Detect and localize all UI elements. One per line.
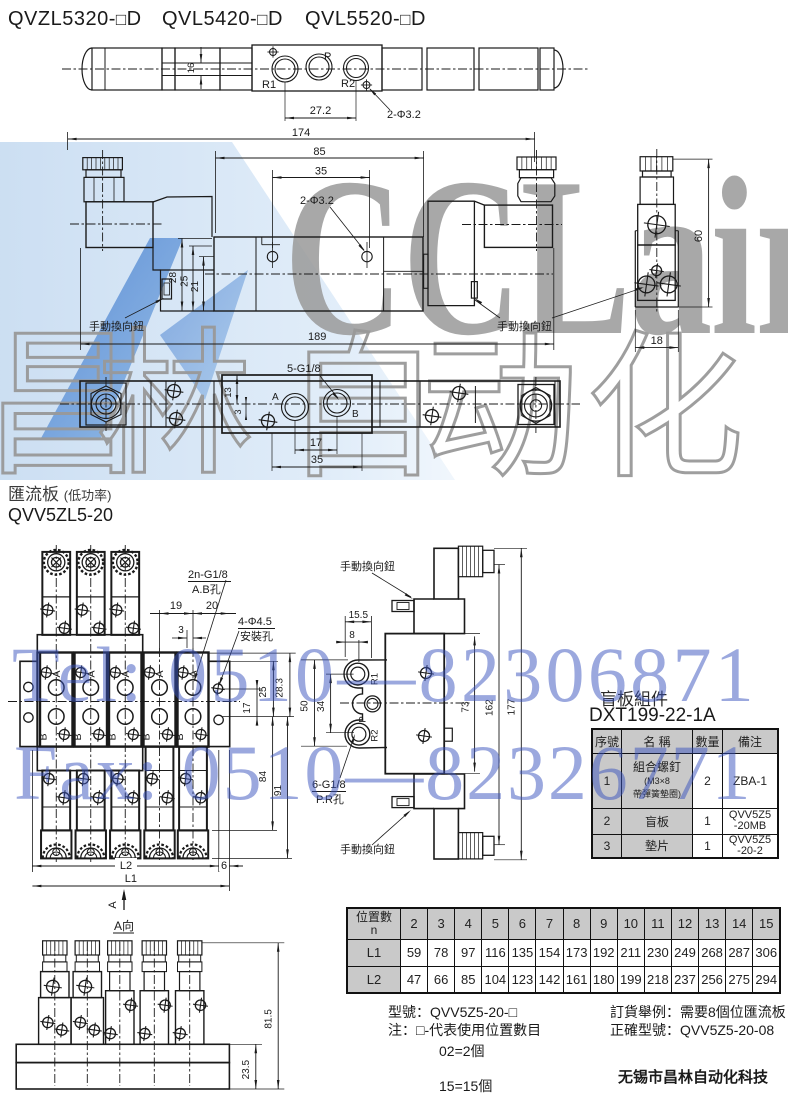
svg-text:3: 3 — [233, 409, 243, 414]
svg-text:174: 174 — [292, 127, 310, 139]
svg-text:A向: A向 — [114, 918, 134, 933]
svg-text:4-Φ4.5: 4-Φ4.5 — [238, 616, 272, 628]
svg-text:A: A — [107, 901, 119, 909]
svg-text:手動換向鈕: 手動換向鈕 — [340, 842, 395, 856]
svg-text:P: P — [324, 51, 331, 63]
svg-text:35: 35 — [315, 166, 327, 178]
svg-text:17: 17 — [310, 437, 322, 449]
svg-text:L2: L2 — [120, 860, 132, 872]
svg-text:16: 16 — [186, 63, 197, 74]
svg-text:189: 189 — [308, 331, 326, 343]
svg-text:60: 60 — [693, 230, 705, 242]
svg-text:手動換向鈕: 手動換向鈕 — [340, 559, 395, 573]
svg-text:18: 18 — [651, 335, 663, 347]
svg-text:手動換向鈕: 手動換向鈕 — [497, 319, 552, 333]
svg-text:5-G1/8: 5-G1/8 — [287, 363, 321, 375]
svg-text:27.2: 27.2 — [310, 105, 331, 117]
svg-text:81.5: 81.5 — [264, 1009, 275, 1029]
svg-text:6: 6 — [221, 860, 227, 872]
svg-text:2-Φ3.2: 2-Φ3.2 — [300, 195, 334, 207]
svg-text:A: A — [272, 392, 279, 403]
svg-text:R1: R1 — [262, 79, 276, 91]
svg-text:B: B — [352, 409, 359, 420]
svg-text:15.5: 15.5 — [349, 610, 369, 621]
svg-text:19: 19 — [170, 600, 182, 612]
svg-text:85: 85 — [313, 146, 325, 158]
svg-text:2-Φ3.2: 2-Φ3.2 — [387, 109, 421, 121]
svg-text:2n-G1/8: 2n-G1/8 — [188, 569, 228, 581]
svg-text:手動換向鈕: 手動換向鈕 — [89, 319, 144, 333]
svg-text:A.B孔: A.B孔 — [192, 583, 221, 596]
svg-text:23.5: 23.5 — [241, 1059, 252, 1079]
svg-text:L1: L1 — [125, 873, 137, 885]
svg-text:21: 21 — [190, 281, 201, 293]
svg-text:R2: R2 — [341, 78, 355, 90]
svg-text:13: 13 — [223, 387, 234, 398]
svg-text:25: 25 — [180, 275, 191, 287]
svg-text:35: 35 — [311, 454, 323, 466]
svg-text:28: 28 — [168, 272, 179, 284]
